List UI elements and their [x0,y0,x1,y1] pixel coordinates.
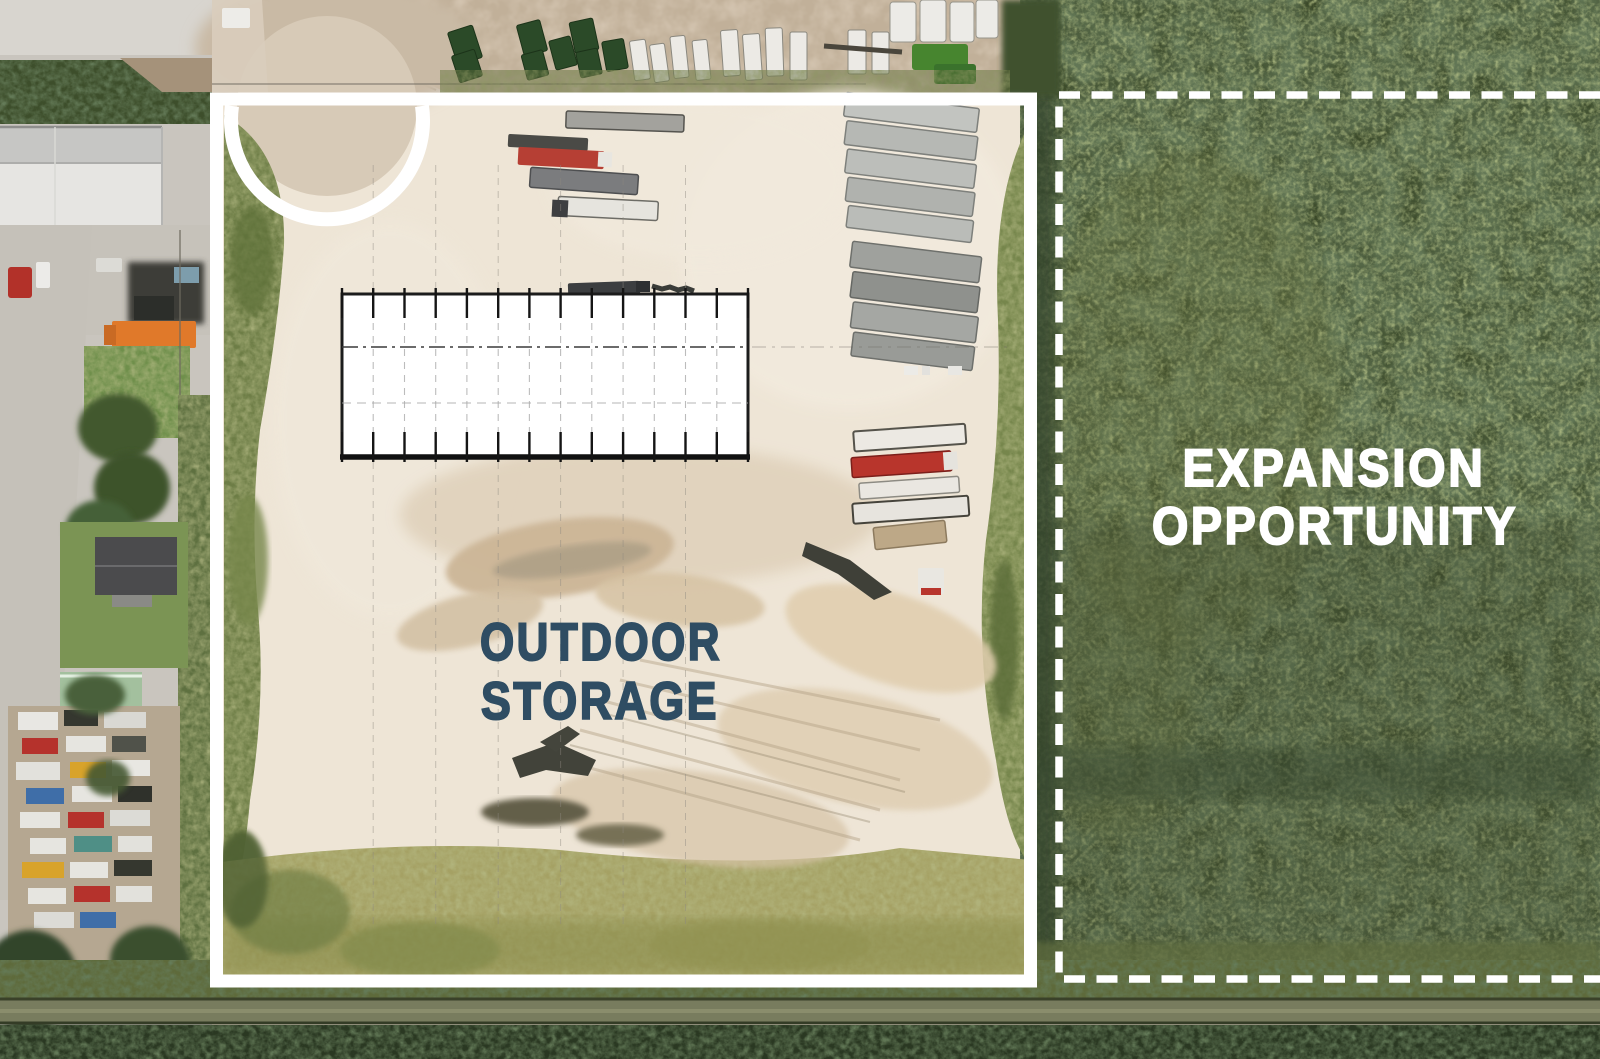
svg-text:OUTDOOR: OUTDOOR [480,613,722,672]
svg-text:EXPANSION: EXPANSION [1183,439,1486,498]
svg-text:STORAGE: STORAGE [481,672,719,731]
svg-text:OPPORTUNITY: OPPORTUNITY [1152,497,1518,556]
